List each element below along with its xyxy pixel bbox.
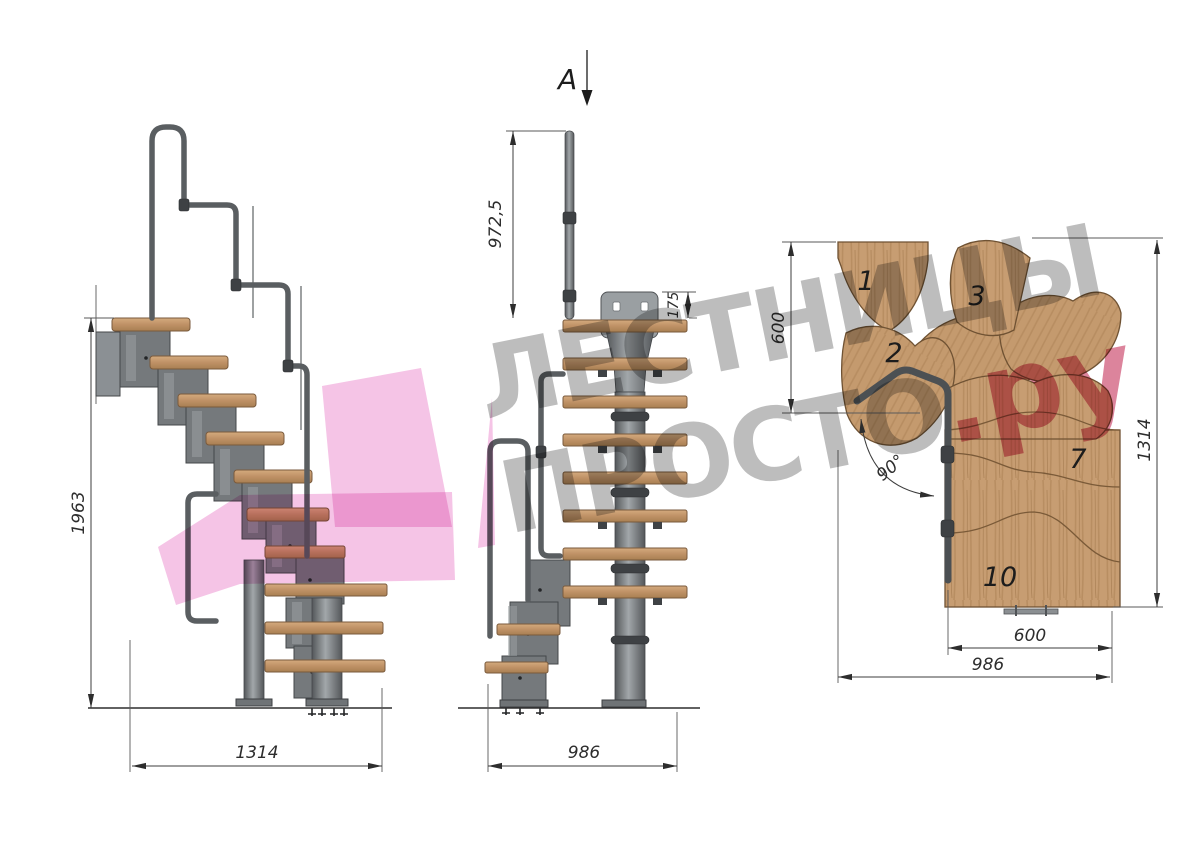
dim-rail-label: 972,5 — [486, 200, 506, 249]
tread-number-2: 2 — [885, 338, 902, 369]
dim-front-width-label: 986 — [568, 743, 601, 763]
tread-number-10: 10 — [983, 562, 1017, 593]
plan-tread-1 — [838, 242, 928, 331]
staircase-drawing: 1963 1314 A — [0, 0, 1200, 849]
tread-number-7: 7 — [1069, 444, 1086, 475]
ribbon-sliver — [478, 398, 495, 548]
dim-tread-width-label: 600 — [1014, 626, 1046, 646]
dim-depth-label: 600 — [769, 312, 789, 344]
dim-height-label: 1963 — [69, 491, 89, 534]
section-arrow-icon — [582, 90, 593, 106]
tread-number-1: 1 — [857, 266, 874, 297]
lower-base-plate — [500, 700, 548, 707]
tread-number-3: 3 — [968, 281, 985, 312]
dim-length-label: 1314 — [1135, 418, 1155, 461]
angle-label: 90° — [873, 451, 909, 486]
anchor-bolts — [308, 708, 348, 716]
plan-straight-flight — [945, 430, 1120, 607]
column-base-plate — [236, 699, 272, 706]
rear-support-column — [312, 598, 342, 702]
plan-mount-plate — [1004, 609, 1058, 614]
section-marker: A — [556, 50, 593, 106]
section-label: A — [556, 63, 577, 96]
dim-plate-label: 175 — [666, 292, 682, 319]
dim-plan-width-label: 986 — [972, 655, 1005, 675]
wall-bracket — [96, 332, 120, 396]
plan-tread-6 — [947, 375, 1112, 439]
rear-base-plate — [306, 699, 348, 706]
drawing-canvas: 1963 1314 A — [0, 0, 1200, 849]
dim-width-label: 1314 — [235, 743, 278, 763]
plan-view: 1 2 3 7 10 600 1314 90° 600 986 — [769, 238, 1163, 683]
anchor-bolts-front — [502, 708, 544, 715]
front-elevation-view: A — [458, 50, 700, 772]
central-base-plate — [602, 700, 646, 707]
